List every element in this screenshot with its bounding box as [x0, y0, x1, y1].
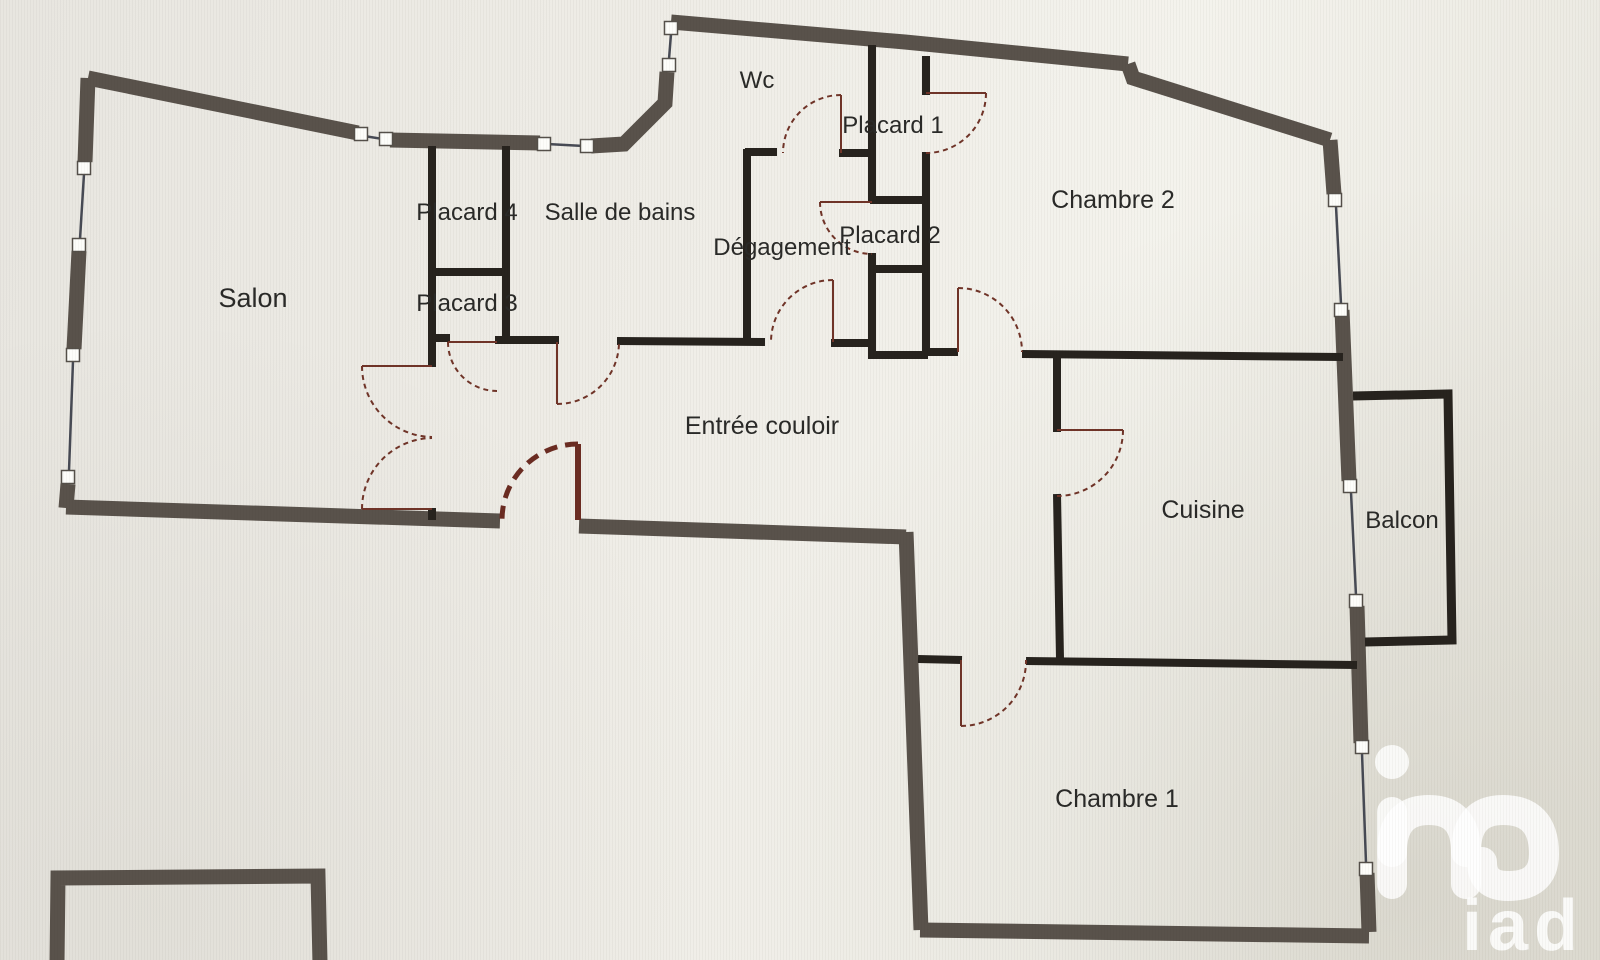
room-label-wc: Wc	[740, 67, 775, 94]
wall-right-pier-4	[1367, 873, 1369, 932]
door-arc	[448, 342, 497, 391]
wall-right-pier-3	[1357, 606, 1361, 743]
window-joint	[581, 140, 594, 153]
door-arc	[362, 438, 432, 509]
room-label-balcon: Balcon	[1365, 507, 1438, 534]
room-label-placard2: Placard 2	[839, 222, 940, 249]
window-joint	[1335, 304, 1348, 317]
windows	[62, 22, 1373, 876]
window-joint	[78, 162, 91, 175]
window-chambre2-right	[1336, 206, 1341, 304]
room-label-placard3: Placard 3	[416, 290, 517, 317]
door-salon-double	[362, 366, 432, 509]
wall-chambre1-top-right	[1026, 661, 1357, 665]
iad-logo: iad	[1375, 745, 1584, 960]
window-joint	[1360, 863, 1373, 876]
wall-chambre1-top-left	[918, 659, 962, 660]
window-joint	[380, 133, 393, 146]
door-entrance-main	[502, 444, 578, 520]
window-joint	[663, 59, 676, 72]
room-label-chambre2: Chambre 2	[1051, 186, 1175, 214]
window-cuisine-balcon	[1351, 492, 1356, 596]
door-degagement	[771, 280, 833, 342]
window-joint	[73, 239, 86, 252]
wall-right-pier-2	[1342, 310, 1349, 481]
room-label-degagement: Dégagement	[713, 234, 851, 261]
exterior-walls	[57, 22, 1369, 960]
window-joint	[1344, 480, 1357, 493]
window-salon-left-upper	[80, 174, 84, 239]
door-arc	[961, 660, 1026, 726]
window-joint	[355, 128, 368, 141]
iad-logo-text: iad	[1462, 886, 1584, 960]
door-arc	[1057, 430, 1123, 496]
doors	[362, 93, 1123, 726]
wall-bottom	[920, 930, 1369, 936]
wall-left-pier-top	[85, 78, 88, 162]
wall-chambre2-bottom-right	[1022, 354, 1343, 357]
door-cuisine	[1057, 430, 1123, 496]
wall-top-sdb-step	[591, 72, 667, 146]
room-label-placard4: Placard 4	[416, 199, 517, 226]
window-wc	[669, 34, 671, 59]
room-label-sdb: Salle de bains	[545, 199, 696, 226]
window-sdb-top	[547, 144, 584, 146]
window-joints	[62, 22, 1373, 876]
window-chambre1-right	[1362, 753, 1366, 863]
door-chambre-2	[958, 288, 1022, 352]
wall-top-salon	[88, 78, 358, 133]
door-arc	[783, 95, 841, 153]
wall-right-pier-1	[1330, 140, 1334, 194]
window-joint	[1329, 194, 1342, 207]
door-salle-de-bains	[557, 342, 619, 404]
window-joint	[1356, 741, 1369, 754]
room-labels: Salon Placard 4 Salle de bains Wc Placar…	[218, 67, 1438, 813]
wall-top-chambre2	[1128, 64, 1330, 140]
room-label-placard1: Placard 1	[842, 112, 943, 139]
window-joint	[1350, 595, 1363, 608]
wall-couloir-top-3	[617, 341, 765, 342]
window-joint	[665, 22, 678, 35]
room-label-cuisine: Cuisine	[1161, 496, 1244, 524]
wall-neighbour-structure	[57, 876, 320, 960]
window-joint	[62, 471, 75, 484]
window-joint	[67, 349, 80, 362]
iad-logo-icon	[1375, 745, 1544, 886]
door-arc	[362, 366, 432, 437]
wall-top-placards	[390, 140, 540, 143]
wall-cuisine-left-bottom	[1057, 494, 1060, 659]
room-label-chambre1: Chambre 1	[1055, 785, 1179, 813]
room-label-entree: Entrée couloir	[685, 412, 839, 440]
wall-chambre1-left	[906, 532, 921, 930]
door-arc	[557, 342, 619, 404]
door-arc	[502, 444, 578, 520]
wall-couloir-bottom-right	[579, 526, 906, 537]
door-arc	[771, 280, 833, 342]
door-chambre-1	[961, 660, 1026, 726]
wall-left-pier-mid	[74, 251, 79, 349]
door-arc	[958, 288, 1022, 352]
room-label-salon: Salon	[218, 283, 287, 313]
window-salon-left-lower	[69, 361, 73, 471]
door-placard-3	[448, 342, 497, 391]
floor-plan-canvas: Salon Placard 4 Salle de bains Wc Placar…	[0, 0, 1600, 960]
window-joint	[538, 138, 551, 151]
wall-top-wc-band	[671, 22, 1128, 64]
door-wc	[783, 95, 841, 153]
